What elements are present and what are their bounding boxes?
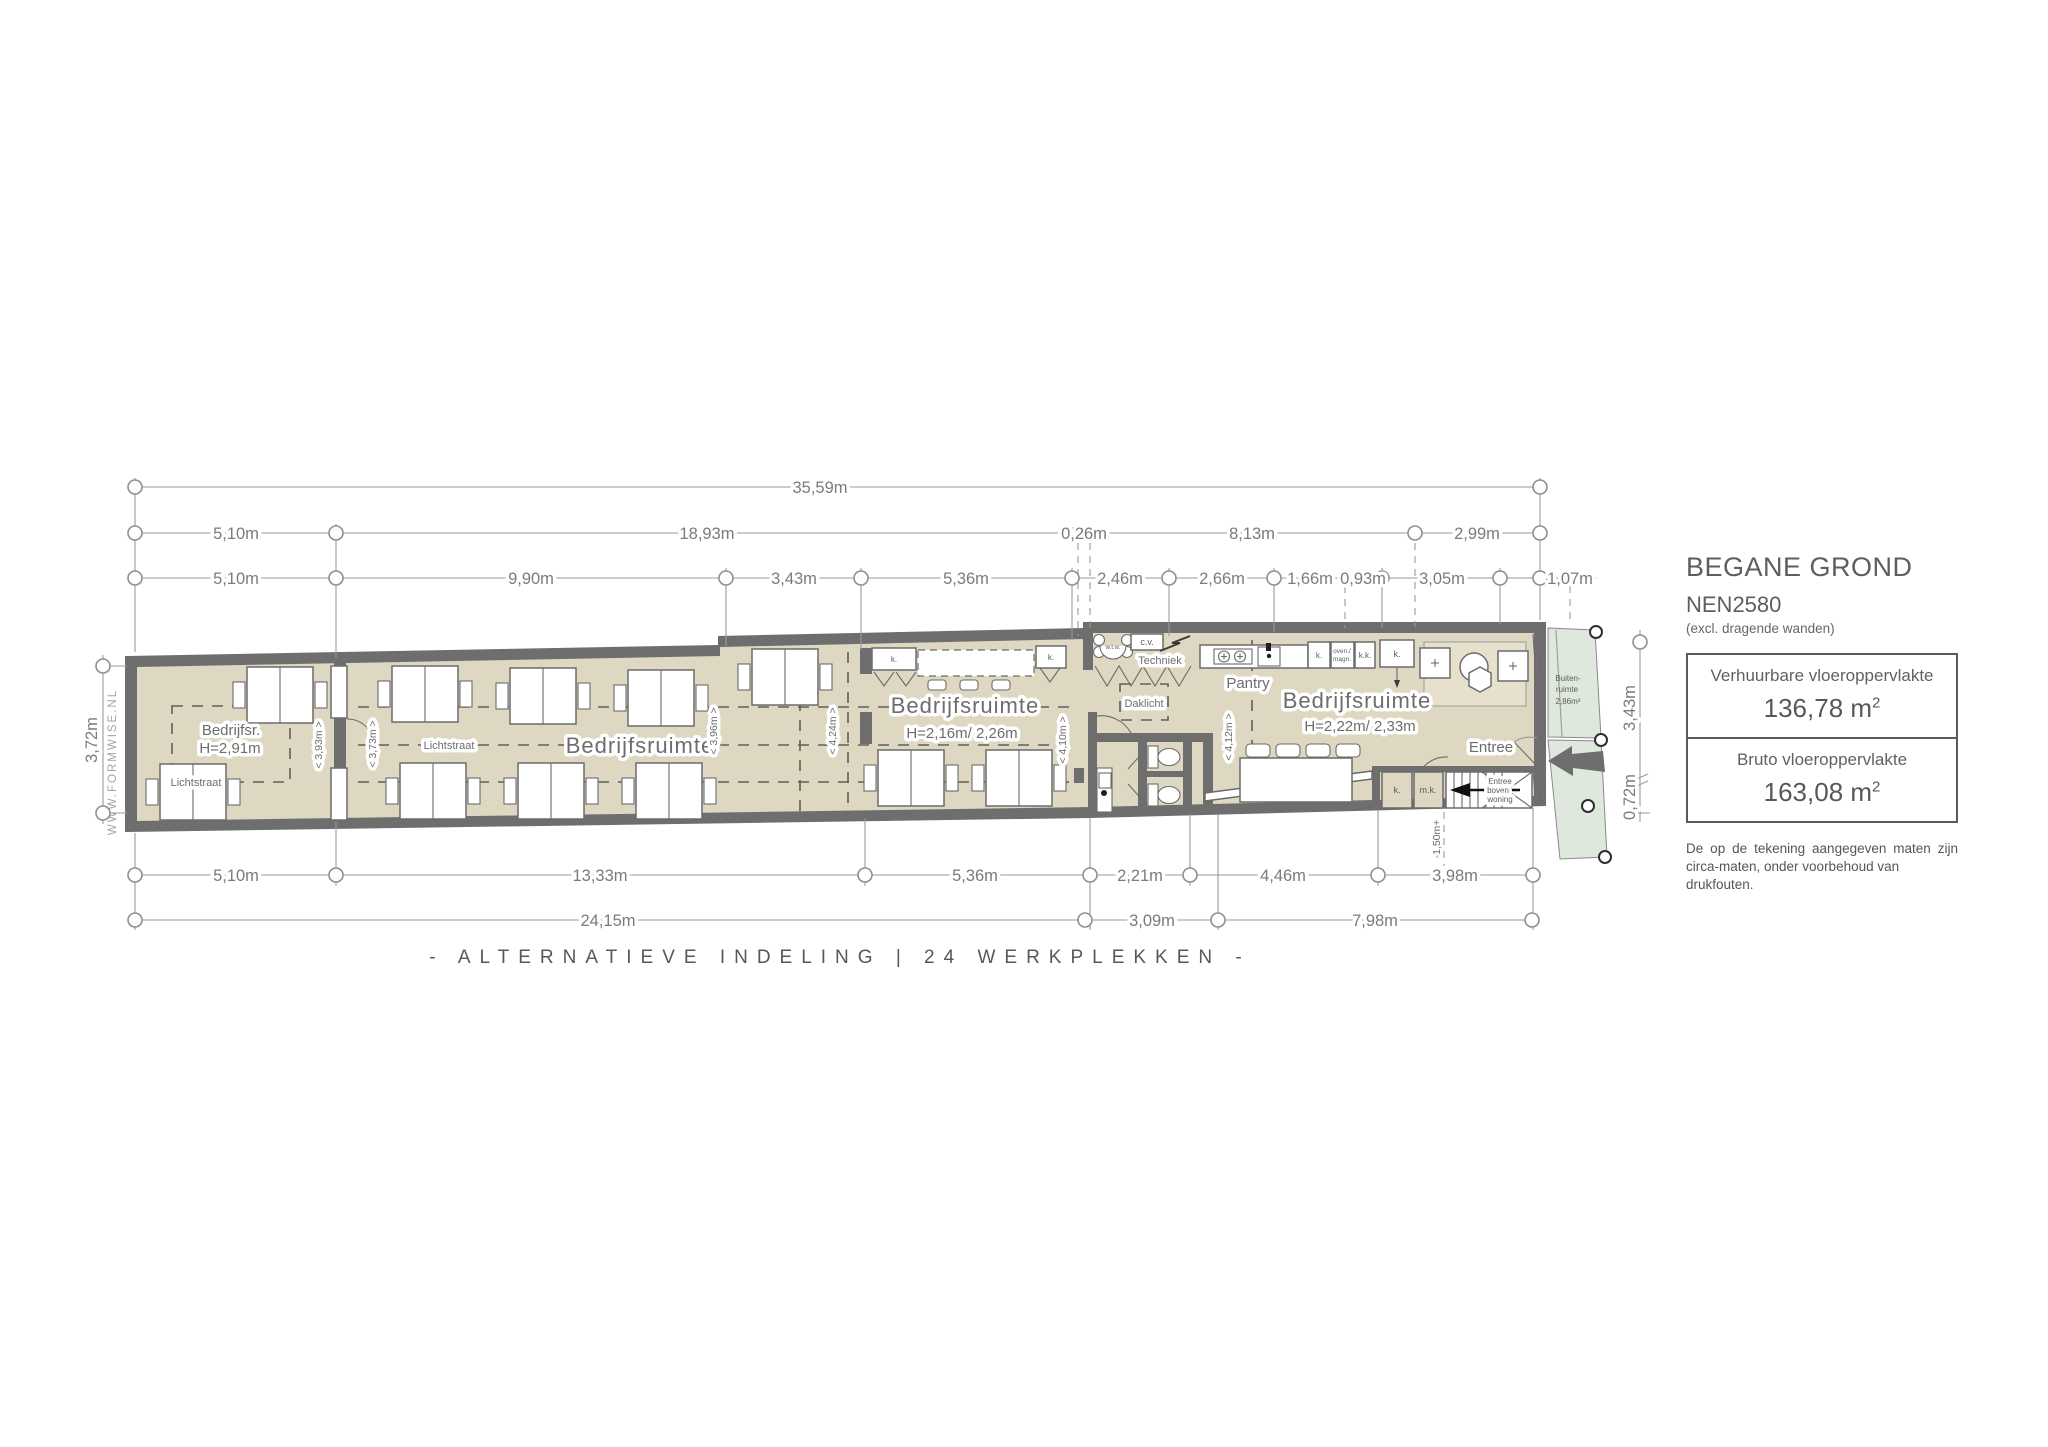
room-label: Bedrijfsr. — [202, 722, 260, 739]
dim-label: 3,72m — [83, 717, 101, 763]
drawing-standard-note: (excl. dragende wanden) — [1686, 621, 1958, 636]
stair-note: Entree — [1488, 777, 1512, 786]
desk-group — [622, 763, 716, 819]
disclaimer-line: circa-maten, onder voorbehoud van drukfo… — [1686, 858, 1958, 894]
cabinet-label: k. — [891, 655, 897, 664]
room-label: Bedrijfsruimte — [1283, 688, 1431, 713]
desk-group — [146, 764, 240, 820]
legend-panel: BEGANE GROND NEN2580 (excl. dragende wan… — [1686, 552, 1958, 895]
stool — [960, 680, 978, 690]
stool — [928, 680, 946, 690]
terrace-area-label: 2,86m² — [1556, 697, 1581, 706]
room-height-label: H=2,22m/ 2,33m — [1304, 718, 1415, 735]
oven-cabinet — [1331, 642, 1354, 668]
dim-label: 5,36m — [943, 570, 989, 588]
area-value-sup: 2 — [1872, 694, 1880, 711]
dim-label: 7,98m — [1352, 912, 1398, 930]
area-value: 163,08 m2 — [1692, 777, 1952, 808]
desk-group — [233, 667, 327, 723]
desk-group — [504, 763, 598, 819]
skylight-label: Lichtstraat — [171, 777, 222, 789]
dim-label: 1,66m — [1287, 570, 1333, 588]
dim-label: 1,07m — [1547, 570, 1593, 588]
terrace-post — [1595, 734, 1607, 746]
toilet-tank — [1148, 746, 1158, 768]
dim-label: 0,26m — [1061, 525, 1107, 543]
cabinet-label: oven./ — [1333, 648, 1351, 655]
area-value: 136,78 m2 — [1692, 693, 1952, 724]
room-height-label: H=2,16m/ 2,26m — [906, 725, 1017, 742]
disclaimer-line: De op de tekening aangegeven maten zijn — [1686, 840, 1958, 858]
inner-dim: < 3,73m > — [367, 720, 379, 767]
area-value-text: 136,78 m — [1764, 693, 1872, 723]
cabinet-label: k. — [1316, 651, 1322, 660]
dim-label: 5,10m — [213, 867, 259, 885]
area-row-gross: Bruto vloeroppervlakte 163,08 m2 — [1688, 737, 1956, 821]
lounge — [1420, 642, 1528, 706]
desk-group — [972, 750, 1066, 806]
dim-label: 3,43m — [771, 570, 817, 588]
dim-label: 3,98m — [1432, 867, 1478, 885]
stair-note: woning — [1486, 795, 1512, 804]
desk-group — [386, 763, 480, 819]
desk-group — [864, 750, 958, 806]
inner-dim: < 4,10m > — [1057, 716, 1069, 763]
toilet-tank — [1148, 784, 1158, 806]
room-label: Bedrijfsruimte — [566, 733, 714, 758]
toilet-bowl — [1158, 787, 1180, 804]
dim-label: 3,05m — [1419, 570, 1465, 588]
drawing-title: BEGANE GROND — [1686, 552, 1958, 583]
area-label: Bruto vloeroppervlakte — [1692, 750, 1952, 770]
wtw-label: w.t.w. — [1105, 645, 1121, 651]
meter-closet-label: m.k. — [1420, 785, 1437, 795]
stair-level-dim: -1,50m+ — [1431, 820, 1443, 859]
pouf — [1469, 667, 1491, 692]
stair-note: boven — [1487, 786, 1509, 795]
cabinet-label: k. — [1393, 649, 1400, 659]
dim-label: 24,15m — [580, 912, 635, 930]
drawing-standard: NEN2580 — [1686, 592, 1958, 618]
dim-label: 5,10m — [213, 525, 259, 543]
inner-dim: < 4,24m > — [827, 707, 839, 754]
counter — [918, 650, 1034, 676]
meeting-table — [1240, 744, 1360, 802]
area-value-text: 163,08 m — [1764, 777, 1872, 807]
buitenruimte-upper — [1548, 628, 1601, 738]
terrace-post — [1599, 851, 1611, 863]
door-leaf — [331, 666, 347, 718]
stool — [992, 680, 1010, 690]
room-label: Bedrijfsruimte — [891, 693, 1039, 718]
area-value-sup: 2 — [1872, 778, 1880, 795]
room-label: Techniek — [1138, 655, 1182, 667]
desk-group — [614, 670, 708, 726]
room-height-label: H=2,91m — [199, 740, 260, 757]
dim-label: 2,99m — [1454, 525, 1500, 543]
dim-label: 13,33m — [572, 867, 627, 885]
dim-label: 18,93m — [679, 525, 734, 543]
inner-dim: < 4,12m > — [1223, 713, 1235, 760]
terrace-post — [1590, 626, 1602, 638]
dim-label: 8,13m — [1229, 525, 1275, 543]
cabinet-label: magn. — [1333, 656, 1351, 663]
cabinet-label: k.k. — [1359, 651, 1371, 660]
dim-label: 3,09m — [1129, 912, 1175, 930]
dim-label: 5,36m — [952, 867, 998, 885]
disclaimer: De op de tekening aangegeven maten zijn … — [1686, 840, 1958, 895]
area-label: Verhuurbare vloeroppervlakte — [1692, 666, 1952, 686]
inner-dim: < 3,96m > — [708, 707, 720, 754]
toilet-bowl — [1158, 749, 1180, 766]
terrace-post — [1582, 800, 1594, 812]
terrace-label: ruimte — [1556, 685, 1579, 694]
inner-dim: < 3,93m > — [313, 721, 325, 768]
door-leaf — [331, 768, 347, 820]
dim-label: 9,90m — [508, 570, 554, 588]
dim-label: 35,59m — [792, 479, 847, 497]
room-label: Entree — [1469, 739, 1513, 756]
dim-label: 2,46m — [1097, 570, 1143, 588]
cabinet-label: k. — [1048, 653, 1054, 662]
skylight-label: Lichtstraat — [424, 740, 475, 752]
skylight-label: Daklicht — [1124, 698, 1163, 710]
dim-label: 4,46m — [1260, 867, 1306, 885]
dim-label: 3,43m — [1621, 685, 1639, 731]
dim-label: 0,93m — [1340, 570, 1386, 588]
dim-label: 2,21m — [1117, 867, 1163, 885]
terrace-label: Buiten- — [1555, 674, 1581, 683]
room-label: Pantry — [1226, 675, 1270, 692]
dim-label: 5,10m — [213, 570, 259, 588]
closet-label: k. — [1393, 785, 1400, 795]
dim-label: 2,66m — [1199, 570, 1245, 588]
area-row-rentable: Verhuurbare vloeroppervlakte 136,78 m2 — [1688, 655, 1956, 737]
plan-caption: - ALTERNATIEVE INDELING | 24 WERKPLEKKEN… — [250, 947, 1430, 969]
area-table: Verhuurbare vloeroppervlakte 136,78 m2 B… — [1686, 653, 1958, 823]
desk-group — [378, 666, 472, 722]
dim-label: 0,72m — [1621, 774, 1639, 820]
desk-group — [738, 649, 832, 705]
cv-label: c.v. — [1140, 637, 1153, 647]
desk-group — [496, 668, 590, 724]
